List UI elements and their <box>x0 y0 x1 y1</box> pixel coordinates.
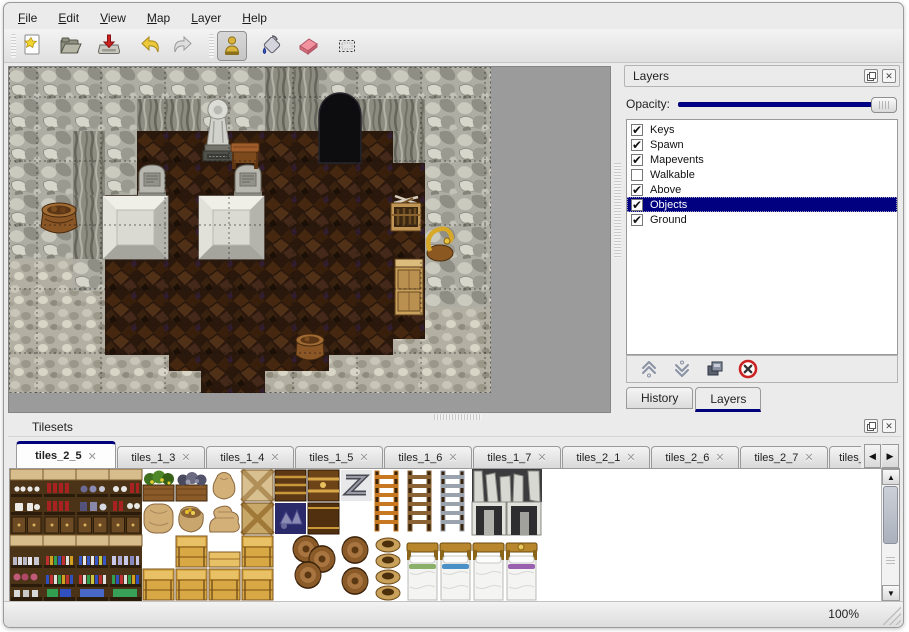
close-panel-icon[interactable]: ✕ <box>882 419 896 433</box>
tile-bookshelf <box>43 535 76 601</box>
zoom-level: 100% <box>828 607 859 621</box>
menu-bar: FileEditViewMapLayerHelp <box>4 7 903 29</box>
tile-bed-blue <box>440 543 471 600</box>
toolbar-drag-handle[interactable] <box>209 34 214 58</box>
open-folder-icon <box>58 33 84 59</box>
tab-layers[interactable]: Layers <box>695 387 761 412</box>
layer-name: Above <box>650 184 681 196</box>
menu-map[interactable]: Map <box>147 11 170 25</box>
layer-name: Objects <box>650 199 687 211</box>
layer-row-mapevents[interactable]: ✔Mapevents <box>627 152 897 167</box>
tile-barrel-stack <box>342 537 368 594</box>
close-tab-icon[interactable]: ✕ <box>537 451 546 464</box>
tile-crate <box>242 569 273 600</box>
stamp-tool-icon <box>219 33 245 59</box>
tile-ladder-orange <box>375 471 398 531</box>
vertical-splitter-handle[interactable] <box>614 163 621 258</box>
tileset-tab-label: tiles_1_3 <box>131 452 175 464</box>
fill-tool-icon <box>259 33 285 59</box>
menu-help[interactable]: Help <box>242 11 267 25</box>
eraser-tool-button[interactable] <box>293 31 323 61</box>
stamp-tool-button[interactable] <box>217 31 247 61</box>
close-tab-icon[interactable]: ✕ <box>88 450 97 463</box>
tomb-platform <box>199 196 264 259</box>
float-panel-icon[interactable] <box>864 69 878 83</box>
layers-panel-header[interactable]: Layers ✕ <box>624 65 900 87</box>
tile-stone-doorway <box>507 502 541 535</box>
undo-icon <box>138 33 164 59</box>
tilesets-panel-title: Tilesets <box>32 420 73 434</box>
new-file-button[interactable] <box>18 31 48 61</box>
resize-grip[interactable] <box>879 605 901 625</box>
tile-barrel-cluster <box>293 536 335 588</box>
layer-row-keys[interactable]: ✔Keys <box>627 122 897 137</box>
tileset-tab-tiles_1_7[interactable]: tiles_1_7✕ <box>473 446 561 468</box>
tileset-tab-label: tiles_2_7 <box>754 452 798 464</box>
tile-chest-bottom <box>308 503 339 534</box>
tileset-tab-tiles_1_5[interactable]: tiles_1_5✕ <box>295 446 383 468</box>
layer-name: Mapevents <box>650 154 704 166</box>
layer-list[interactable]: ✔Keys✔Spawn✔MapeventsWalkable✔Above✔Obje… <box>626 119 898 355</box>
layer-row-above[interactable]: ✔Above <box>627 182 897 197</box>
rect-select-tool-button[interactable] <box>332 31 362 61</box>
map-canvas[interactable] <box>8 66 611 413</box>
scroll-tabs-right-button[interactable]: ▶ <box>882 444 899 468</box>
tile-ladder-steel <box>441 471 464 531</box>
tileset-scrollbar[interactable]: ▲ ▼ <box>881 469 899 601</box>
tile-crate-x <box>242 470 273 501</box>
tileset-tab-tiles_2_5[interactable]: tiles_2_5✕ <box>16 441 116 468</box>
tileset-tab-label: tiles_1_7 <box>487 452 531 464</box>
main-toolbar <box>4 29 903 63</box>
tile-ore-crate <box>176 472 207 501</box>
layers-panel: Layers ✕ Opacity: ✔Keys✔Spawn✔MapeventsW… <box>624 65 900 414</box>
tile-plant-crate <box>143 471 174 502</box>
tile-crate <box>242 536 273 567</box>
tile-crate-tall <box>176 536 207 600</box>
save-button[interactable] <box>94 31 124 61</box>
tile-bed-green <box>407 543 438 600</box>
tile-open-sack-gold <box>179 506 204 532</box>
tile-sack <box>213 473 235 500</box>
close-tab-icon[interactable]: ✕ <box>359 451 368 464</box>
tile-bookshelf <box>109 535 142 601</box>
layer-visibility-checkbox[interactable]: ✔ <box>631 154 643 166</box>
close-panel-icon[interactable]: ✕ <box>882 69 896 83</box>
app-window: FileEditViewMapLayerHelp <box>3 2 904 628</box>
tileset-tab-tiles_1_3[interactable]: tiles_1_3✕ <box>117 446 205 468</box>
scrollbar-thumb[interactable] <box>883 486 898 544</box>
tileset-tab-tiles_2_1[interactable]: tiles_2_1✕ <box>562 446 650 468</box>
eraser-tool-icon <box>295 33 321 59</box>
scroll-up-button[interactable]: ▲ <box>882 469 900 485</box>
tile-crate <box>209 569 240 600</box>
tileset-tab-tiles_2_7[interactable]: tiles_2_7✕ <box>740 446 828 468</box>
layer-visibility-checkbox[interactable]: ✔ <box>631 184 643 196</box>
tile-bed-plain <box>473 543 504 600</box>
tileset-tab-label: tiles_1_5 <box>309 452 353 464</box>
gravestone <box>138 165 166 196</box>
close-tab-icon[interactable]: ✕ <box>448 451 457 464</box>
scroll-tabs-left-button[interactable]: ◀ <box>864 444 881 468</box>
scrollbar-ridge <box>886 557 895 565</box>
layer-name: Ground <box>650 214 687 226</box>
layer-visibility-checkbox[interactable] <box>631 169 643 181</box>
tileset-tab-label: tiles_1_6 <box>398 452 442 464</box>
tomb-platform <box>103 196 168 259</box>
tile-stone-doorway <box>472 502 506 535</box>
layer-row-spawn[interactable]: ✔Spawn <box>627 137 897 152</box>
wooden-cabinet <box>395 259 423 315</box>
rect-select-tool-icon <box>334 33 360 59</box>
toolbar-drag-handle[interactable] <box>11 34 16 58</box>
close-tab-icon[interactable]: ✕ <box>715 451 724 464</box>
fill-tool-button[interactable] <box>257 31 287 61</box>
tileset-tab-label: tiles_ <box>839 452 861 464</box>
tile-shelf-pots <box>76 469 109 535</box>
undo-button[interactable] <box>136 31 166 61</box>
layer-visibility-checkbox[interactable]: ✔ <box>631 139 643 151</box>
scroll-down-button[interactable]: ▼ <box>882 585 900 601</box>
redo-icon <box>169 33 195 59</box>
opacity-label: Opacity: <box>626 97 670 111</box>
menu-layer[interactable]: Layer <box>191 11 221 25</box>
tileset-tab-label: tiles_2_1 <box>576 452 620 464</box>
tileset-tab-label: tiles_2_5 <box>35 450 81 462</box>
opacity-slider[interactable] <box>678 102 896 107</box>
tile-chest <box>308 470 339 501</box>
basket <box>296 334 324 360</box>
layer-visibility-checkbox[interactable]: ✔ <box>631 199 643 211</box>
tilesets-panel: Tilesets ✕ tiles_2_5✕tiles_1_3✕tiles_1_4… <box>8 417 901 603</box>
open-file-button[interactable] <box>56 31 86 61</box>
layer-row-walkable[interactable]: Walkable <box>627 167 897 182</box>
tile-crate <box>143 569 174 600</box>
delete-layer-icon[interactable] <box>738 359 758 379</box>
close-tab-icon[interactable]: ✕ <box>270 451 279 464</box>
layer-toolbar <box>626 355 898 383</box>
close-tab-icon[interactable]: ✕ <box>626 451 635 464</box>
tile-chest <box>275 470 306 501</box>
tile-sack-pile <box>210 506 240 532</box>
close-tab-icon[interactable]: ✕ <box>181 451 190 464</box>
float-panel-icon[interactable] <box>864 419 878 433</box>
move-layer-down-icon[interactable] <box>672 359 692 379</box>
tab-history[interactable]: History <box>626 387 693 409</box>
tileset-tab-tiles_2_6[interactable]: tiles_2_6✕ <box>651 446 739 468</box>
tile-metal-z <box>341 470 372 501</box>
tile-bookshelf <box>10 535 43 601</box>
tile-bed-purple <box>506 543 537 600</box>
cave-entrance <box>319 93 361 163</box>
menu-file[interactable]: File <box>18 11 37 25</box>
status-bar: 100% <box>4 601 903 627</box>
tile-shelf-mixed <box>109 469 142 535</box>
basket <box>41 203 77 233</box>
new-file-icon <box>20 33 46 59</box>
panel-tab-bar: HistoryLayers <box>626 387 763 412</box>
tile-shelf-dishes <box>10 469 43 535</box>
close-tab-icon[interactable]: ✕ <box>804 451 813 464</box>
tileset-tab-tiles_1_4[interactable]: tiles_1_4✕ <box>206 446 294 468</box>
layers-panel-title: Layers <box>633 69 669 83</box>
layer-name: Keys <box>650 124 674 136</box>
tile-shelf-red-bottles <box>43 469 76 535</box>
tileset-tab-tiles_1_6[interactable]: tiles_1_6✕ <box>384 446 472 468</box>
map-render <box>9 67 491 393</box>
layer-visibility-checkbox[interactable]: ✔ <box>631 214 643 226</box>
menu-edit[interactable]: Edit <box>58 11 79 25</box>
tile-crate-top <box>209 552 240 567</box>
tileset-tab-bar: tiles_2_5✕tiles_1_3✕tiles_1_4✕tiles_1_5✕… <box>16 441 861 468</box>
move-layer-up-icon[interactable] <box>639 359 659 379</box>
tileset-tab-tiles_[interactable]: tiles_ <box>829 446 861 468</box>
tile-crate-x <box>242 503 273 534</box>
duplicate-layer-icon[interactable] <box>705 359 725 379</box>
tileset-tab-label: tiles_2_6 <box>665 452 709 464</box>
save-icon <box>96 33 122 59</box>
gravestone <box>234 165 262 196</box>
tile-bookshelf <box>76 535 109 601</box>
tile-blue-mineral <box>275 503 306 534</box>
menu-view[interactable]: View <box>100 11 126 25</box>
layer-row-ground[interactable]: ✔Ground <box>627 212 897 227</box>
tile-ladder-brown <box>408 471 431 531</box>
tile-pot-stack <box>376 538 400 600</box>
tileset-render <box>10 469 870 601</box>
redo-button[interactable] <box>167 31 197 61</box>
tile-stone-arch <box>472 469 542 502</box>
layer-name: Spawn <box>650 139 684 151</box>
tile-sack-large <box>144 504 173 533</box>
opacity-slider-handle[interactable] <box>871 97 897 113</box>
layer-row-objects[interactable]: ✔Objects <box>627 197 897 212</box>
layer-name: Walkable <box>650 169 695 181</box>
layer-visibility-checkbox[interactable]: ✔ <box>631 124 643 136</box>
tileset-canvas[interactable]: ▲ ▼ <box>9 468 900 602</box>
tileset-tab-label: tiles_1_4 <box>220 452 264 464</box>
